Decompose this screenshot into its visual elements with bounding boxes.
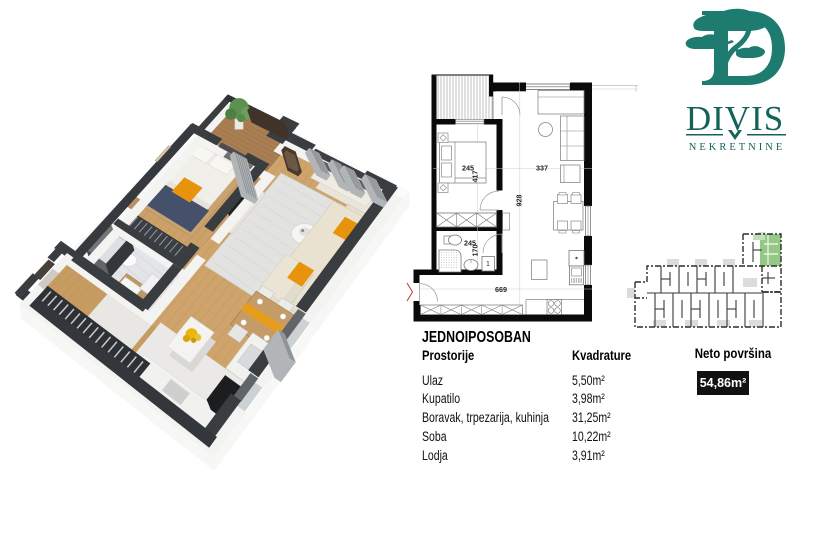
svg-text:1: 1 — [486, 261, 490, 268]
svg-text:170: 170 — [471, 245, 480, 257]
svg-text:417: 417 — [471, 171, 480, 183]
svg-text:DIVIS: DIVIS — [686, 99, 784, 138]
svg-text:669: 669 — [495, 285, 507, 294]
svg-text:337: 337 — [536, 164, 548, 173]
svg-text:NEKRETNINE: NEKRETNINE — [689, 142, 786, 153]
svg-text:928: 928 — [515, 195, 524, 207]
